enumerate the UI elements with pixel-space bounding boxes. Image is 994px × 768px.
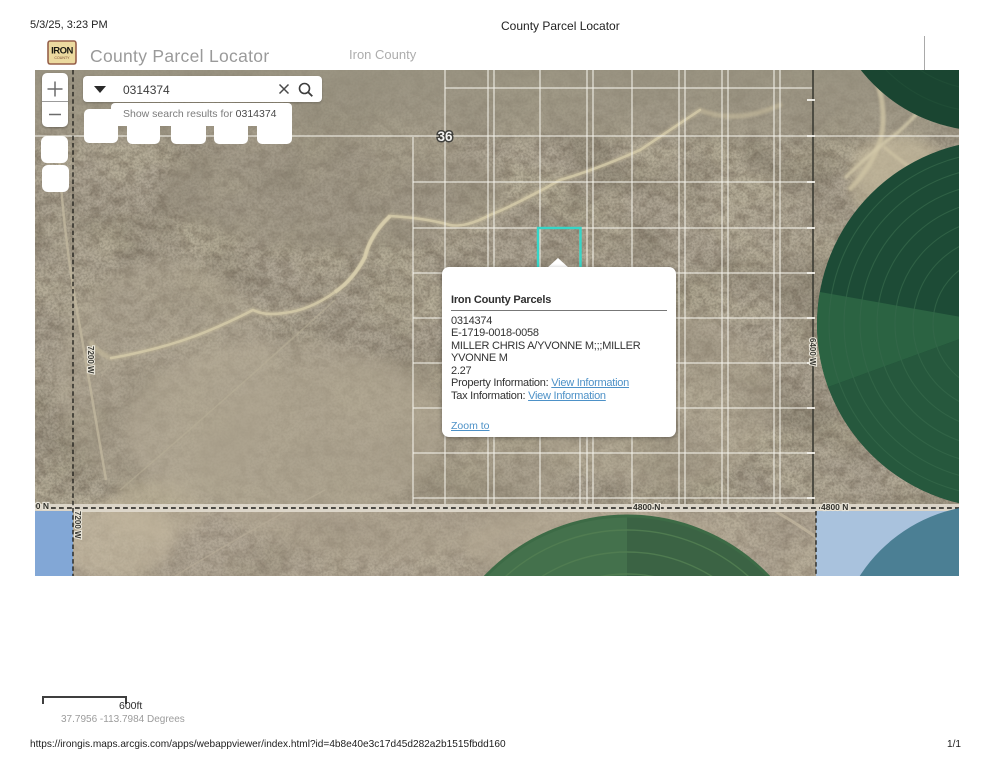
svg-text:COUNTY: COUNTY bbox=[54, 56, 70, 60]
svg-text:IRON: IRON bbox=[51, 46, 73, 57]
svg-text:6400 W: 6400 W bbox=[808, 338, 817, 366]
svg-text:4800 N: 4800 N bbox=[821, 502, 848, 512]
svg-text:36: 36 bbox=[437, 129, 453, 144]
svg-text:00 N: 00 N bbox=[35, 501, 49, 511]
svg-text:7200 W: 7200 W bbox=[73, 511, 82, 539]
svg-text:4800 N: 4800 N bbox=[633, 502, 660, 512]
svg-text:7200 W: 7200 W bbox=[86, 346, 95, 374]
